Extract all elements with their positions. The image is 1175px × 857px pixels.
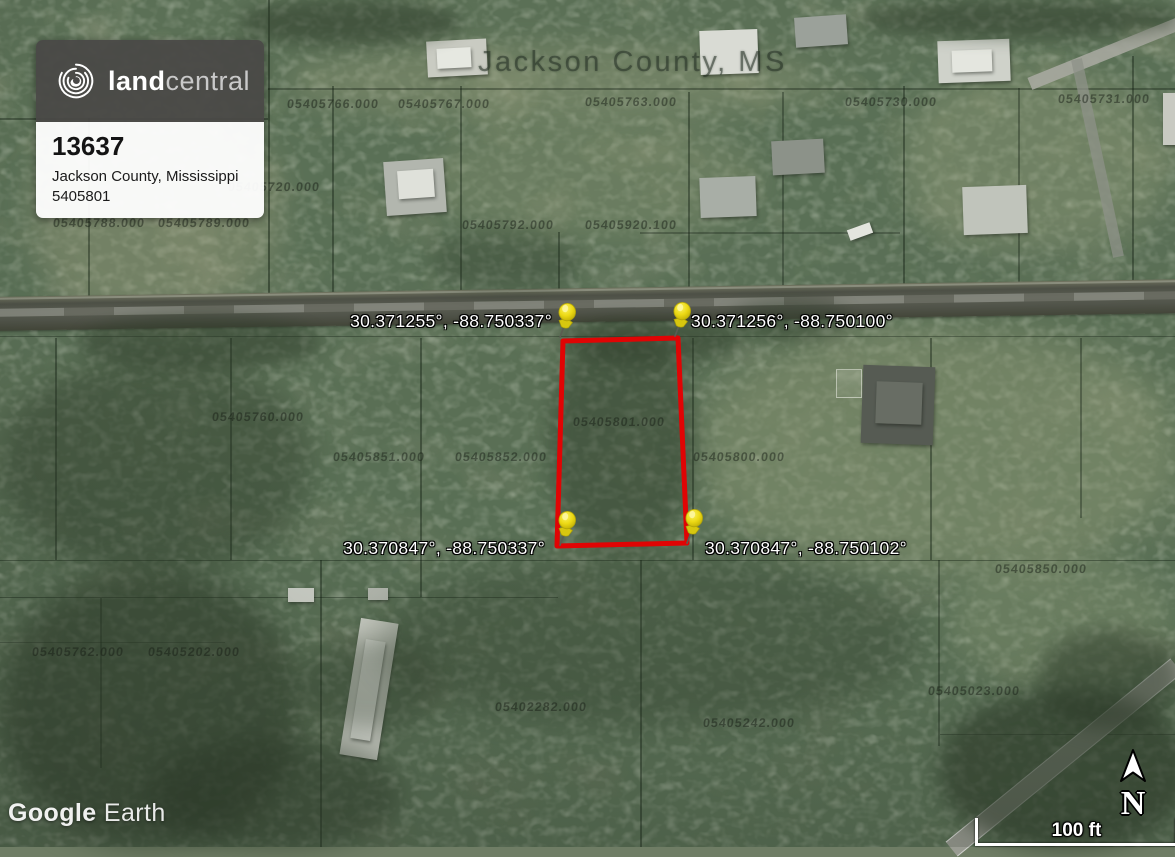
coordinate-label-top-left: 30.371255°, -88.750337° <box>350 311 552 332</box>
brand-word-central: central <box>165 66 250 96</box>
listing-location: Jackson County, Mississippi <box>52 167 248 187</box>
map-pin-top-right[interactable] <box>670 301 692 338</box>
north-arrow-icon <box>1114 748 1152 784</box>
listing-card-header: landcentral <box>36 40 264 122</box>
brand-word-land: land <box>108 66 166 96</box>
coordinate-label-top-right: 30.371256°, -88.750100° <box>691 311 893 332</box>
coordinate-label-bottom-left: 30.370847°, -88.750337° <box>343 538 545 559</box>
watermark-earth: Earth <box>104 799 166 827</box>
map-pin-top-left[interactable] <box>555 302 577 339</box>
compass-north-label: N <box>1114 789 1152 820</box>
compass: N <box>1114 748 1152 820</box>
listing-parcel-number: 5405801 <box>52 187 248 207</box>
landcentral-logo-icon <box>58 59 94 103</box>
listing-card: landcentral 13637 Jackson County, Missis… <box>36 40 264 218</box>
listing-card-body: 13637 Jackson County, Mississippi 540580… <box>36 122 264 218</box>
scale-bar-label: 100 ft <box>978 820 1175 842</box>
listing-id: 13637 <box>52 131 248 162</box>
coordinate-label-bottom-right: 30.370847°, -88.750102° <box>705 538 907 559</box>
brand-wordmark: landcentral <box>108 66 250 97</box>
scale-bar: 100 ft <box>975 818 1175 846</box>
property-boundary <box>557 338 687 546</box>
watermark-google: Google <box>8 799 97 827</box>
google-earth-watermark: Google Earth <box>8 799 166 828</box>
